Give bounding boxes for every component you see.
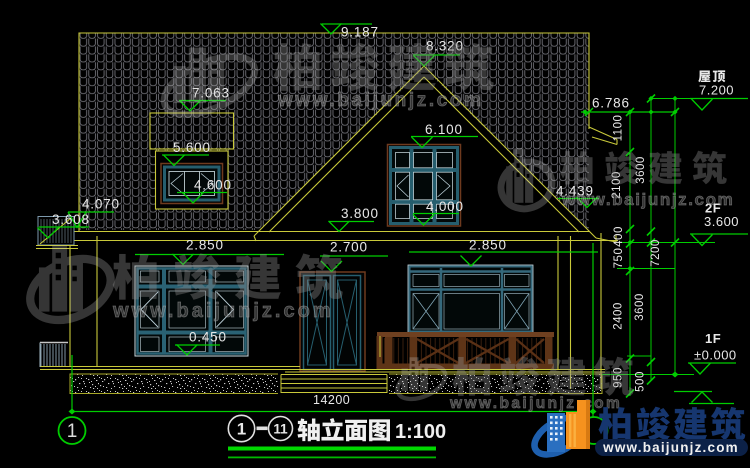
- svg-text:0.450: 0.450: [189, 330, 227, 345]
- svg-text:400: 400: [613, 226, 625, 247]
- svg-text:2400: 2400: [613, 302, 625, 330]
- svg-text:1: 1: [237, 420, 246, 439]
- svg-text:3.600: 3.600: [704, 214, 739, 229]
- svg-text:14200: 14200: [313, 393, 350, 407]
- svg-text:5.600: 5.600: [173, 140, 211, 155]
- svg-text:2.700: 2.700: [330, 240, 368, 255]
- svg-text:±0.000: ±0.000: [694, 348, 737, 363]
- svg-text:3.800: 3.800: [341, 206, 379, 221]
- svg-text:500: 500: [635, 371, 647, 392]
- svg-text:11: 11: [273, 422, 288, 437]
- svg-text:www.baijunjz.com: www.baijunjz.com: [112, 300, 334, 322]
- svg-text:6.100: 6.100: [425, 122, 463, 137]
- svg-text:1:100: 1:100: [395, 421, 446, 443]
- svg-text:2.850: 2.850: [186, 238, 224, 253]
- svg-text:7.200: 7.200: [699, 83, 734, 98]
- svg-text:www.baijunjz.com: www.baijunjz.com: [602, 440, 739, 455]
- svg-text:750: 750: [613, 248, 625, 269]
- svg-text:7200: 7200: [650, 239, 662, 267]
- svg-text:www.baijunjz.com: www.baijunjz.com: [277, 90, 484, 111]
- svg-text:4.070: 4.070: [82, 197, 120, 212]
- svg-text:4.600: 4.600: [194, 178, 232, 193]
- svg-text:9.187: 9.187: [341, 25, 379, 40]
- svg-text:1F: 1F: [705, 331, 721, 346]
- svg-text:4.000: 4.000: [426, 199, 464, 214]
- svg-text:www.baijunjz.com: www.baijunjz.com: [449, 395, 622, 412]
- svg-text:2.850: 2.850: [469, 238, 507, 253]
- svg-text:3600: 3600: [634, 293, 646, 321]
- svg-text:6.786: 6.786: [592, 96, 630, 111]
- svg-text:1: 1: [67, 421, 78, 442]
- svg-text:www.baijunjz.com: www.baijunjz.com: [561, 190, 734, 209]
- svg-text:3.608: 3.608: [52, 212, 90, 227]
- svg-text:1100: 1100: [613, 115, 625, 142]
